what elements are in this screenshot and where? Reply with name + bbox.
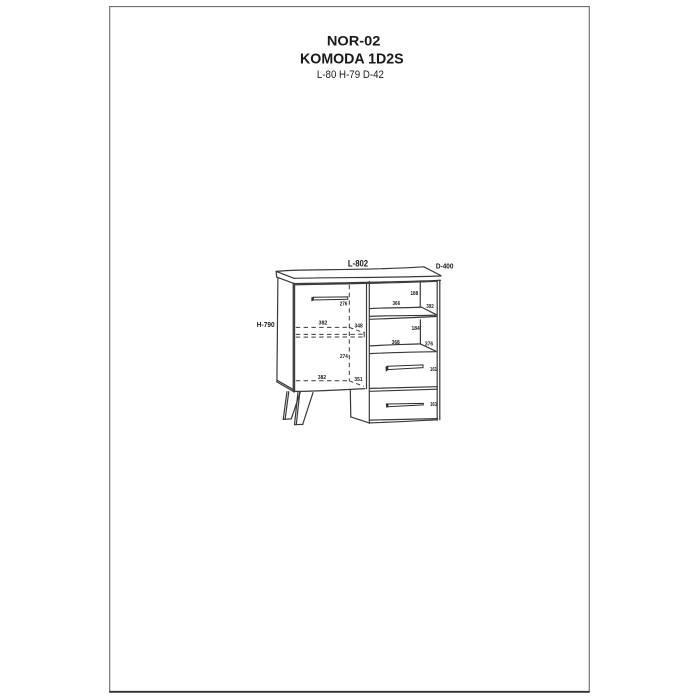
svg-text:188: 188 xyxy=(411,291,419,297)
svg-text:382: 382 xyxy=(319,321,328,327)
svg-text:276: 276 xyxy=(340,302,348,308)
svg-text:D-400: D-400 xyxy=(436,261,454,270)
svg-text:L-802: L-802 xyxy=(348,258,368,268)
svg-text:348: 348 xyxy=(355,323,363,329)
svg-text:184: 184 xyxy=(412,326,420,332)
svg-text:161: 161 xyxy=(430,367,437,373)
svg-text:NOR-02: NOR-02 xyxy=(327,34,381,49)
svg-text:161: 161 xyxy=(430,402,437,408)
svg-text:351: 351 xyxy=(354,377,362,383)
svg-text:368: 368 xyxy=(392,340,400,346)
svg-text:392: 392 xyxy=(426,304,434,310)
svg-text:KOMODA 1D2S: KOMODA 1D2S xyxy=(300,51,404,67)
svg-text:L-80 H-79 D-42: L-80 H-79 D-42 xyxy=(317,69,384,81)
svg-text:366: 366 xyxy=(393,301,401,307)
svg-text:376: 376 xyxy=(425,341,433,347)
svg-text:H-790: H-790 xyxy=(257,320,275,329)
svg-text:382: 382 xyxy=(318,375,326,381)
svg-text:274: 274 xyxy=(340,354,348,360)
